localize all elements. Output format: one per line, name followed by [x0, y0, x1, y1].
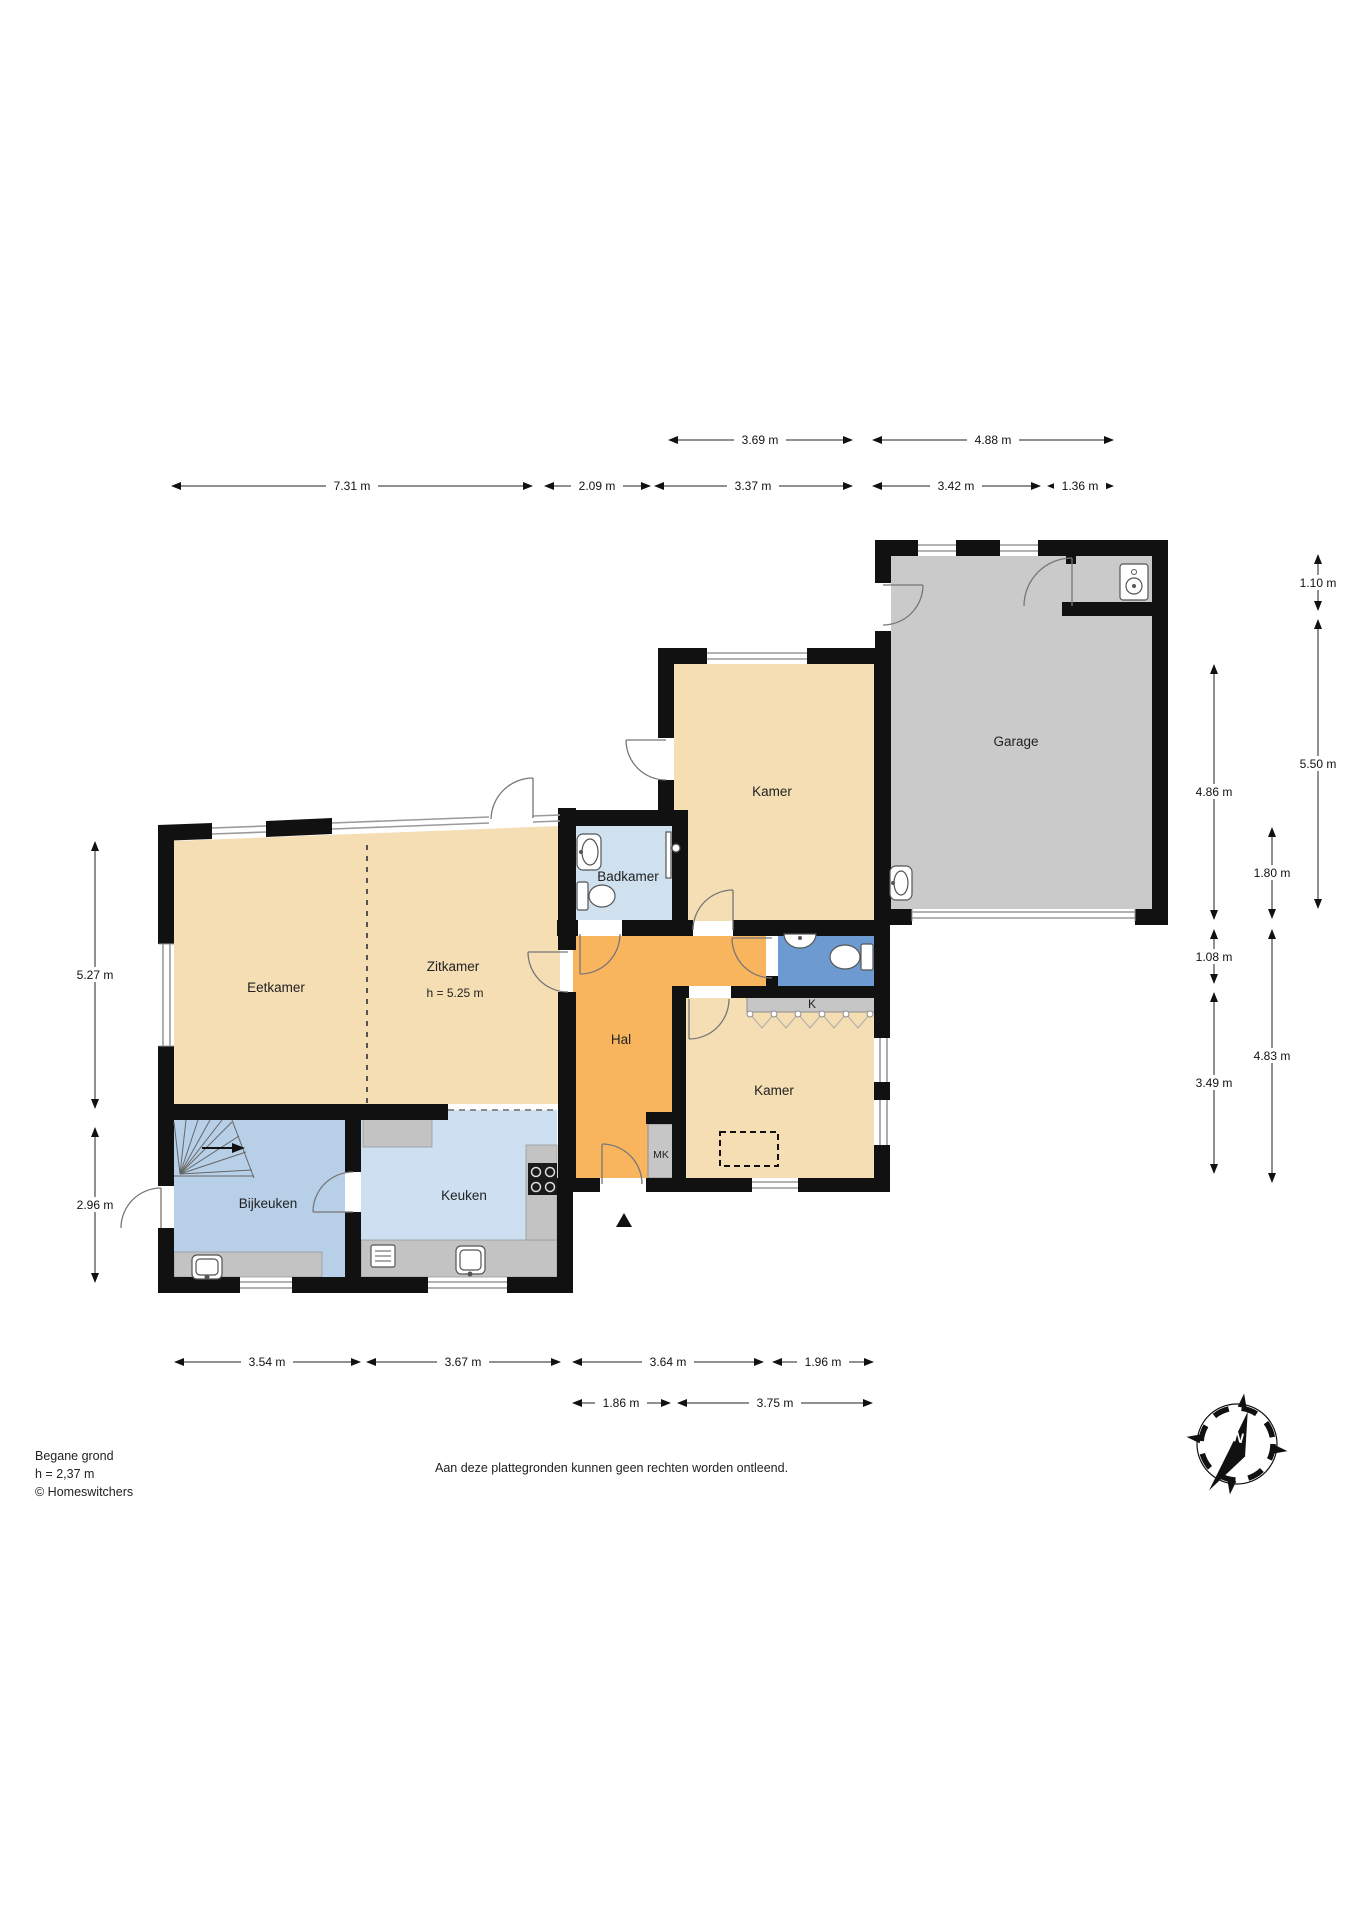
- svg-text:7.31 m: 7.31 m: [334, 479, 371, 493]
- floor-label: Begane grond: [35, 1449, 114, 1463]
- dimension: 3.54 m: [175, 1355, 360, 1369]
- floor-height-label: h = 2,37 m: [35, 1467, 94, 1481]
- window-kamer-top: [707, 653, 807, 659]
- dimension: 3.67 m: [367, 1355, 560, 1369]
- dimension: 2.09 m: [545, 479, 650, 493]
- label-mk-closet: MK: [653, 1149, 669, 1161]
- dimension: 3.64 m: [573, 1355, 763, 1369]
- svg-text:3.49 m: 3.49 m: [1196, 1076, 1233, 1090]
- label-badkamer: Badkamer: [597, 869, 659, 884]
- svg-text:3.42 m: 3.42 m: [938, 479, 975, 493]
- keuken-sink-icon: [456, 1246, 485, 1277]
- dimension: 2.96 m: [69, 1128, 121, 1282]
- disclaimer-text: Aan deze plattegronden kunnen geen recht…: [435, 1461, 788, 1475]
- toilet-wc-icon: [830, 944, 873, 970]
- window-kamer-right-upper: [880, 1038, 887, 1082]
- door-bijkeuken-exterior: [121, 1188, 161, 1228]
- svg-text:2.09 m: 2.09 m: [579, 479, 616, 493]
- window-keuken-bottom: [428, 1282, 507, 1288]
- dimension: 4.83 m: [1246, 930, 1298, 1182]
- svg-text:3.69 m: 3.69 m: [742, 433, 779, 447]
- door-zitkamer-exterior: [491, 778, 533, 819]
- label-bijkeuken: Bijkeuken: [239, 1196, 298, 1211]
- window-kamer-right-lower: [880, 1100, 887, 1145]
- dimension: 3.75 m: [678, 1396, 872, 1410]
- copyright-label: © Homeswitchers: [35, 1485, 133, 1499]
- window-top-2: [332, 817, 489, 829]
- window-garage-top-2: [1000, 545, 1038, 551]
- label-keuken: Keuken: [441, 1188, 487, 1203]
- label-hal: Hal: [611, 1032, 631, 1047]
- label-zitkamer: Zitkamer: [427, 959, 480, 974]
- label-kamer-top: Kamer: [752, 784, 792, 799]
- svg-text:3.64 m: 3.64 m: [650, 1355, 687, 1369]
- dimension: 5.50 m: [1292, 620, 1344, 908]
- svg-text:4.88 m: 4.88 m: [975, 433, 1012, 447]
- svg-text:1.80 m: 1.80 m: [1254, 866, 1291, 880]
- dimension: 1.36 m: [1048, 479, 1113, 493]
- dimension: 3.69 m: [669, 433, 852, 447]
- bijkeuken-sink-icon: [192, 1255, 222, 1280]
- floor-plan-canvas: Eetkamer Zitkamer h = 5.25 m Badkamer Ha…: [0, 0, 1358, 1920]
- label-garage: Garage: [993, 734, 1038, 749]
- svg-text:2.96 m: 2.96 m: [77, 1198, 114, 1212]
- compass-icon: N: [1186, 1393, 1288, 1497]
- svg-text:1.10 m: 1.10 m: [1300, 576, 1337, 590]
- window-kamer-bottom: [752, 1182, 798, 1188]
- label-eetkamer: Eetkamer: [247, 980, 305, 995]
- svg-text:5.27 m: 5.27 m: [77, 968, 114, 982]
- svg-text:1.36 m: 1.36 m: [1062, 479, 1099, 493]
- garage-door-opening: [912, 909, 1135, 921]
- dimension: 1.96 m: [773, 1355, 873, 1369]
- garage-sink-icon: [890, 866, 912, 900]
- svg-text:1.86 m: 1.86 m: [603, 1396, 640, 1410]
- window-top-3: [533, 815, 560, 822]
- dimension: 4.86 m: [1188, 665, 1240, 919]
- boiler-icon: [1120, 564, 1148, 600]
- window-left-wall: [159, 944, 174, 1046]
- badkamer-sink-icon: [577, 834, 601, 870]
- window-bijkeuken-bottom: [240, 1282, 292, 1288]
- svg-text:3.37 m: 3.37 m: [735, 479, 772, 493]
- dimension: 3.37 m: [655, 479, 852, 493]
- svg-text:1.08 m: 1.08 m: [1196, 950, 1233, 964]
- dimension: 1.08 m: [1188, 930, 1240, 983]
- label-zitkamer-height: h = 5.25 m: [426, 986, 483, 1000]
- svg-text:3.75 m: 3.75 m: [757, 1396, 794, 1410]
- svg-text:3.54 m: 3.54 m: [249, 1355, 286, 1369]
- window-garage-top-1: [918, 545, 956, 551]
- dimension: 1.86 m: [573, 1396, 670, 1410]
- badkamer-toilet-icon: [577, 882, 615, 910]
- door-kamer-top-exterior: [626, 740, 666, 780]
- entrance-arrow-icon: [616, 1213, 632, 1227]
- dimension: 7.31 m: [172, 479, 532, 493]
- dimension: 1.80 m: [1246, 828, 1298, 918]
- floor-plan-page: Eetkamer Zitkamer h = 5.25 m Badkamer Ha…: [0, 0, 1358, 1920]
- dimension: 4.88 m: [873, 433, 1113, 447]
- svg-text:4.83 m: 4.83 m: [1254, 1049, 1291, 1063]
- window-top-1: [212, 826, 266, 834]
- dimension: 5.27 m: [69, 842, 121, 1108]
- label-kamer-bottom: Kamer: [754, 1083, 794, 1098]
- footer: Begane grond h = 2,37 m © Homeswitchers …: [35, 1449, 788, 1499]
- dimension: 3.49 m: [1188, 993, 1240, 1173]
- dishwasher-icon: [371, 1245, 395, 1267]
- dimension: 1.10 m: [1292, 555, 1344, 610]
- label-k-closet: K: [808, 997, 816, 1011]
- svg-text:3.67 m: 3.67 m: [445, 1355, 482, 1369]
- dimension: 3.42 m: [873, 479, 1040, 493]
- svg-text:5.50 m: 5.50 m: [1300, 757, 1337, 771]
- svg-text:1.96 m: 1.96 m: [805, 1355, 842, 1369]
- svg-text:4.86 m: 4.86 m: [1196, 785, 1233, 799]
